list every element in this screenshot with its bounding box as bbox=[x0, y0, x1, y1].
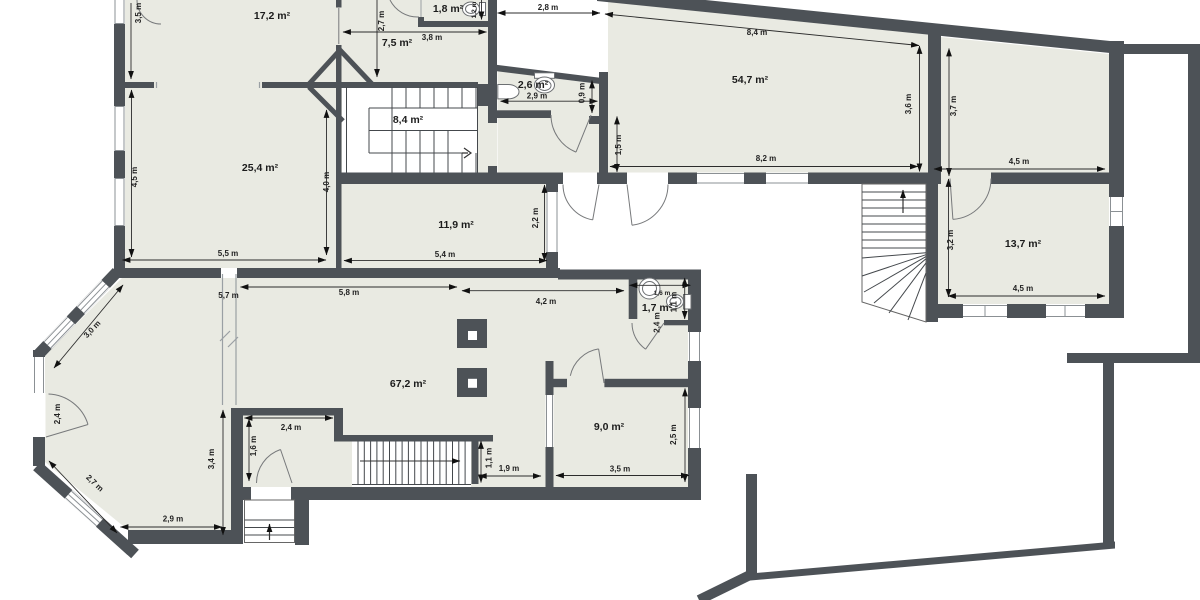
svg-text:4,5 m: 4,5 m bbox=[1013, 284, 1033, 293]
svg-text:8,2 m: 8,2 m bbox=[756, 154, 776, 163]
svg-text:1,1 m: 1,1 m bbox=[670, 292, 679, 312]
svg-text:5,5 m: 5,5 m bbox=[218, 249, 238, 258]
svg-text:1,2 m: 1,2 m bbox=[471, 1, 478, 18]
svg-text:2,6 m²: 2,6 m² bbox=[518, 79, 549, 91]
svg-text:2,8 m: 2,8 m bbox=[538, 3, 558, 12]
svg-text:25,4 m²: 25,4 m² bbox=[242, 162, 279, 174]
svg-text:2,4 m: 2,4 m bbox=[652, 312, 661, 332]
svg-text:4,5 m: 4,5 m bbox=[130, 167, 139, 187]
svg-text:3,8 m: 3,8 m bbox=[422, 33, 442, 42]
svg-text:1,7 m²: 1,7 m² bbox=[642, 302, 673, 314]
svg-text:4,5 m: 4,5 m bbox=[1009, 157, 1029, 166]
svg-text:2,7 m: 2,7 m bbox=[377, 11, 386, 31]
svg-text:2,2 m: 2,2 m bbox=[531, 208, 540, 228]
svg-text:11,9 m²: 11,9 m² bbox=[438, 219, 474, 231]
svg-text:1,1 m: 1,1 m bbox=[485, 448, 494, 468]
svg-text:1,8 m²: 1,8 m² bbox=[433, 3, 464, 15]
svg-text:3,4 m: 3,4 m bbox=[207, 449, 216, 469]
svg-text:2,9 m: 2,9 m bbox=[163, 515, 183, 524]
svg-text:7,5 m²: 7,5 m² bbox=[382, 37, 413, 49]
svg-text:3,5 m: 3,5 m bbox=[134, 3, 143, 23]
svg-text:3,6 m: 3,6 m bbox=[904, 94, 913, 114]
svg-text:3,5 m: 3,5 m bbox=[610, 465, 630, 474]
svg-text:5,8 m: 5,8 m bbox=[339, 288, 359, 297]
svg-text:13,7 m²: 13,7 m² bbox=[1005, 238, 1042, 250]
svg-text:4,2 m: 4,2 m bbox=[536, 297, 556, 306]
svg-text:1,6 m: 1,6 m bbox=[654, 290, 671, 297]
svg-text:1,9 m: 1,9 m bbox=[499, 464, 519, 473]
svg-text:17,2 m²: 17,2 m² bbox=[254, 10, 291, 22]
svg-text:3,2 m: 3,2 m bbox=[946, 230, 955, 250]
svg-text:54,7 m²: 54,7 m² bbox=[732, 74, 769, 86]
svg-text:5,4 m: 5,4 m bbox=[435, 250, 455, 259]
svg-text:1,6 m: 1,6 m bbox=[249, 436, 258, 456]
svg-text:9,0 m²: 9,0 m² bbox=[594, 421, 625, 433]
svg-text:67,2 m²: 67,2 m² bbox=[390, 378, 427, 390]
svg-text:2,4 m: 2,4 m bbox=[53, 404, 62, 424]
svg-text:2,9 m: 2,9 m bbox=[527, 92, 547, 101]
svg-text:8,4 m²: 8,4 m² bbox=[393, 114, 424, 126]
svg-text:3,7 m: 3,7 m bbox=[949, 96, 958, 116]
svg-text:5,7 m: 5,7 m bbox=[218, 291, 238, 300]
svg-text:1,5 m: 1,5 m bbox=[614, 135, 623, 155]
svg-text:2,4 m: 2,4 m bbox=[281, 423, 301, 432]
svg-text:0,9 m: 0,9 m bbox=[578, 83, 587, 103]
svg-text:2,5 m: 2,5 m bbox=[669, 424, 678, 444]
svg-text:4,0 m: 4,0 m bbox=[322, 172, 331, 192]
svg-text:8,4 m: 8,4 m bbox=[747, 28, 767, 37]
